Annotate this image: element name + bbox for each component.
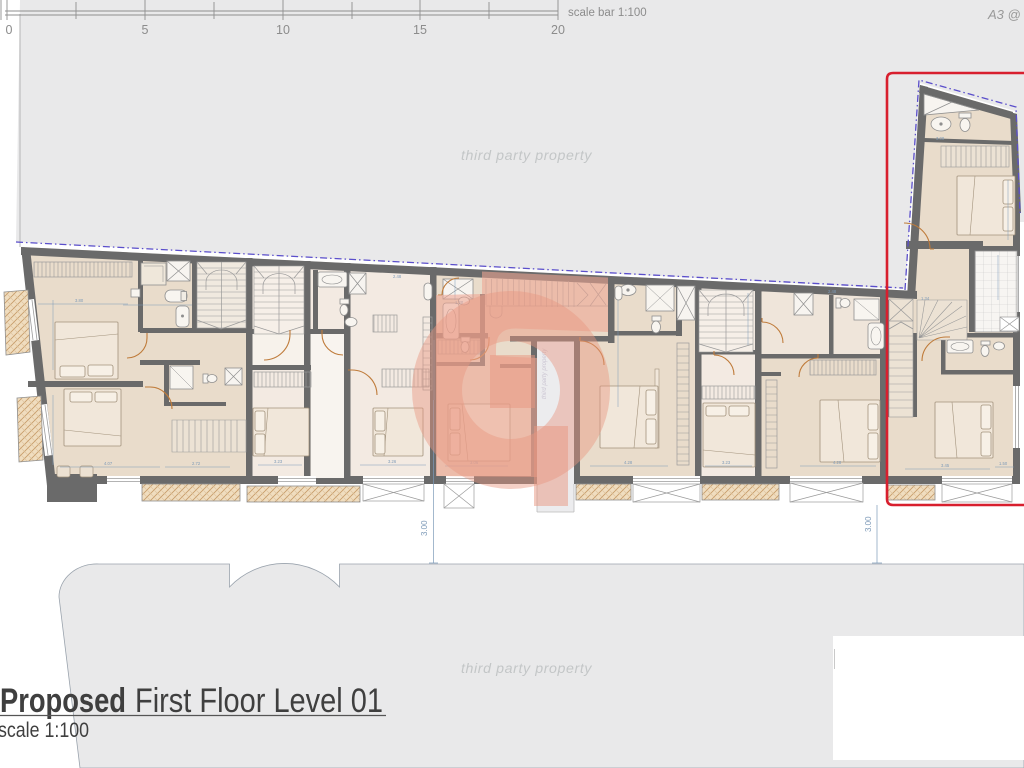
svg-text:10: 10 (276, 23, 290, 37)
svg-text:scale 1:100: scale 1:100 (0, 718, 89, 742)
svg-text:3.23: 3.23 (722, 460, 731, 465)
svg-text:5: 5 (142, 23, 149, 37)
svg-text:1.34: 1.34 (921, 296, 930, 301)
svg-text:3.00: 3.00 (936, 136, 945, 141)
svg-text:Proposed: Proposed (0, 682, 126, 720)
svg-text:15: 15 (413, 23, 427, 37)
svg-text:scale bar 1:100: scale bar 1:100 (568, 7, 647, 19)
svg-text:4.28: 4.28 (624, 460, 633, 465)
svg-text:3.00: 3.00 (864, 516, 873, 532)
svg-text:3.23: 3.23 (274, 459, 283, 464)
svg-text:4.07: 4.07 (104, 461, 113, 466)
svg-text:A3 @: A3 @ (987, 7, 1021, 22)
svg-text:third party property: third party property (461, 148, 592, 164)
svg-text:2.48: 2.48 (393, 274, 402, 279)
svg-text:3.26: 3.26 (388, 459, 397, 464)
svg-text:2.72: 2.72 (192, 461, 201, 466)
svg-text:3.45: 3.45 (941, 463, 950, 468)
svg-text:First Floor Level 01: First Floor Level 01 (135, 682, 383, 720)
svg-text:4.28: 4.28 (833, 460, 842, 465)
svg-text:2.48: 2.48 (828, 289, 837, 294)
svg-text:1.50: 1.50 (999, 461, 1008, 466)
svg-text:third party property: third party property (461, 661, 592, 677)
svg-text:3.80: 3.80 (75, 298, 84, 303)
svg-text:20: 20 (551, 23, 565, 37)
svg-text:3.00: 3.00 (420, 520, 429, 536)
svg-text:0: 0 (6, 23, 13, 37)
